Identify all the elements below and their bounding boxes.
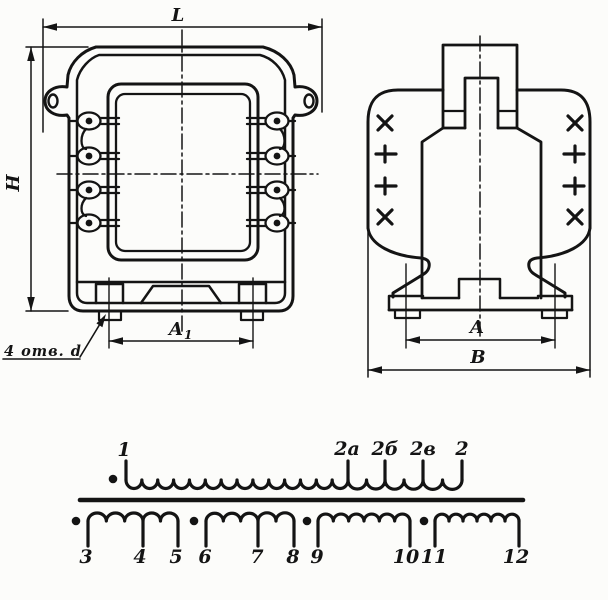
- secondary-winding-3-4-5: [72, 513, 178, 546]
- terminal-eyelet: [247, 215, 295, 232]
- dim-arrow: [406, 336, 420, 344]
- dim-b-label: В: [469, 347, 485, 368]
- bracket-outer-outline: [45, 47, 317, 311]
- terminal-lug-cross-icon: [378, 210, 392, 224]
- terminal-label-2v: 2в: [409, 438, 436, 460]
- secondary-coil-loops: [435, 514, 519, 521]
- dim-arrow: [308, 23, 322, 31]
- secondary-winding-9-10: [303, 514, 410, 546]
- secondary-winding-11-12: [420, 514, 519, 546]
- dim-a-label: A: [468, 317, 484, 338]
- dim-a1-subscript: 1: [184, 328, 192, 342]
- dim-arrow: [109, 337, 123, 345]
- coil-front-outer: [108, 84, 258, 260]
- coil-front-inner: [116, 94, 250, 251]
- secondary-coil-loops: [88, 513, 178, 521]
- terminal-lugs-right: [564, 116, 584, 224]
- primary-coil-loops: [126, 480, 462, 489]
- terminal-label-8: 8: [285, 546, 299, 568]
- phase-dot: [190, 517, 199, 526]
- winding-schematic: [72, 461, 523, 546]
- front-view: [3, 19, 322, 359]
- terminal-label-11: 11: [421, 546, 447, 568]
- coil-side-profile: [422, 128, 541, 298]
- phase-dot: [420, 517, 429, 526]
- dim-arrow: [368, 366, 382, 374]
- terminal-eyelet: [247, 182, 295, 199]
- tab-slot: [465, 78, 498, 128]
- terminal-label-10: 10: [393, 546, 419, 568]
- terminal-lug-plus-icon: [564, 146, 584, 162]
- dim-length-label: L: [171, 5, 185, 26]
- terminal-label-3: 3: [79, 546, 92, 568]
- side-shell-left: [368, 90, 443, 228]
- terminal-label-5: 5: [169, 546, 182, 568]
- skirt-right: [529, 228, 590, 297]
- transformer-drawing-sheet: L H A 1 4 отв. d A В 1 2а 2б 2в 2 3 4 5 …: [0, 0, 608, 600]
- terminal-lugs-left: [376, 116, 396, 224]
- terminal-label-2b: 2б: [371, 438, 399, 460]
- dim-a1-label: A: [167, 319, 183, 340]
- terminal-eyelets-right: [247, 113, 295, 232]
- terminal-lug-plus-icon: [376, 178, 396, 194]
- terminal-lug-cross-icon: [568, 210, 582, 224]
- primary-winding: [109, 461, 462, 489]
- bracket-lug-hole-right: [305, 95, 314, 108]
- phase-dot: [303, 517, 312, 526]
- terminal-label-2a: 2а: [333, 438, 360, 460]
- terminal-label-1: 1: [117, 439, 130, 461]
- terminal-label-7: 7: [250, 546, 263, 568]
- skirt-left: [368, 228, 429, 297]
- holes-note-label: 4 отв. d: [4, 343, 82, 360]
- phase-dot: [72, 517, 81, 526]
- terminal-eyelet: [247, 148, 295, 165]
- terminal-lug-cross-icon: [568, 116, 582, 130]
- dim-height-label: H: [3, 174, 24, 193]
- dim-arrow: [239, 337, 253, 345]
- dim-arrow: [43, 23, 57, 31]
- secondary-winding-6-7-8: [190, 513, 294, 546]
- phase-dot: [109, 475, 118, 484]
- terminal-eyelet: [247, 113, 295, 130]
- terminal-strip-edge: [82, 129, 87, 216]
- terminal-lug-plus-icon: [564, 178, 584, 194]
- bracket-lug-hole-left: [49, 95, 58, 108]
- dim-arrow: [27, 47, 35, 61]
- terminal-label-9: 9: [310, 546, 323, 568]
- terminal-lug-plus-icon: [376, 146, 396, 162]
- terminal-label-12: 12: [503, 546, 529, 568]
- terminal-lug-cross-icon: [378, 116, 392, 130]
- terminal-label-4: 4: [133, 546, 146, 568]
- terminal-label-2: 2: [454, 438, 468, 460]
- technical-drawing: L H A 1 4 отв. d A В 1 2а 2б 2в 2 3 4 5 …: [0, 0, 608, 600]
- center-boss: [141, 286, 221, 303]
- dim-arrow: [27, 297, 35, 311]
- dim-arrow: [576, 366, 590, 374]
- secondary-coil-loops: [318, 514, 410, 521]
- secondary-coil-loops: [206, 513, 294, 521]
- side-shell-right: [517, 90, 590, 228]
- dim-arrow: [541, 336, 555, 344]
- terminal-label-6: 6: [198, 546, 211, 568]
